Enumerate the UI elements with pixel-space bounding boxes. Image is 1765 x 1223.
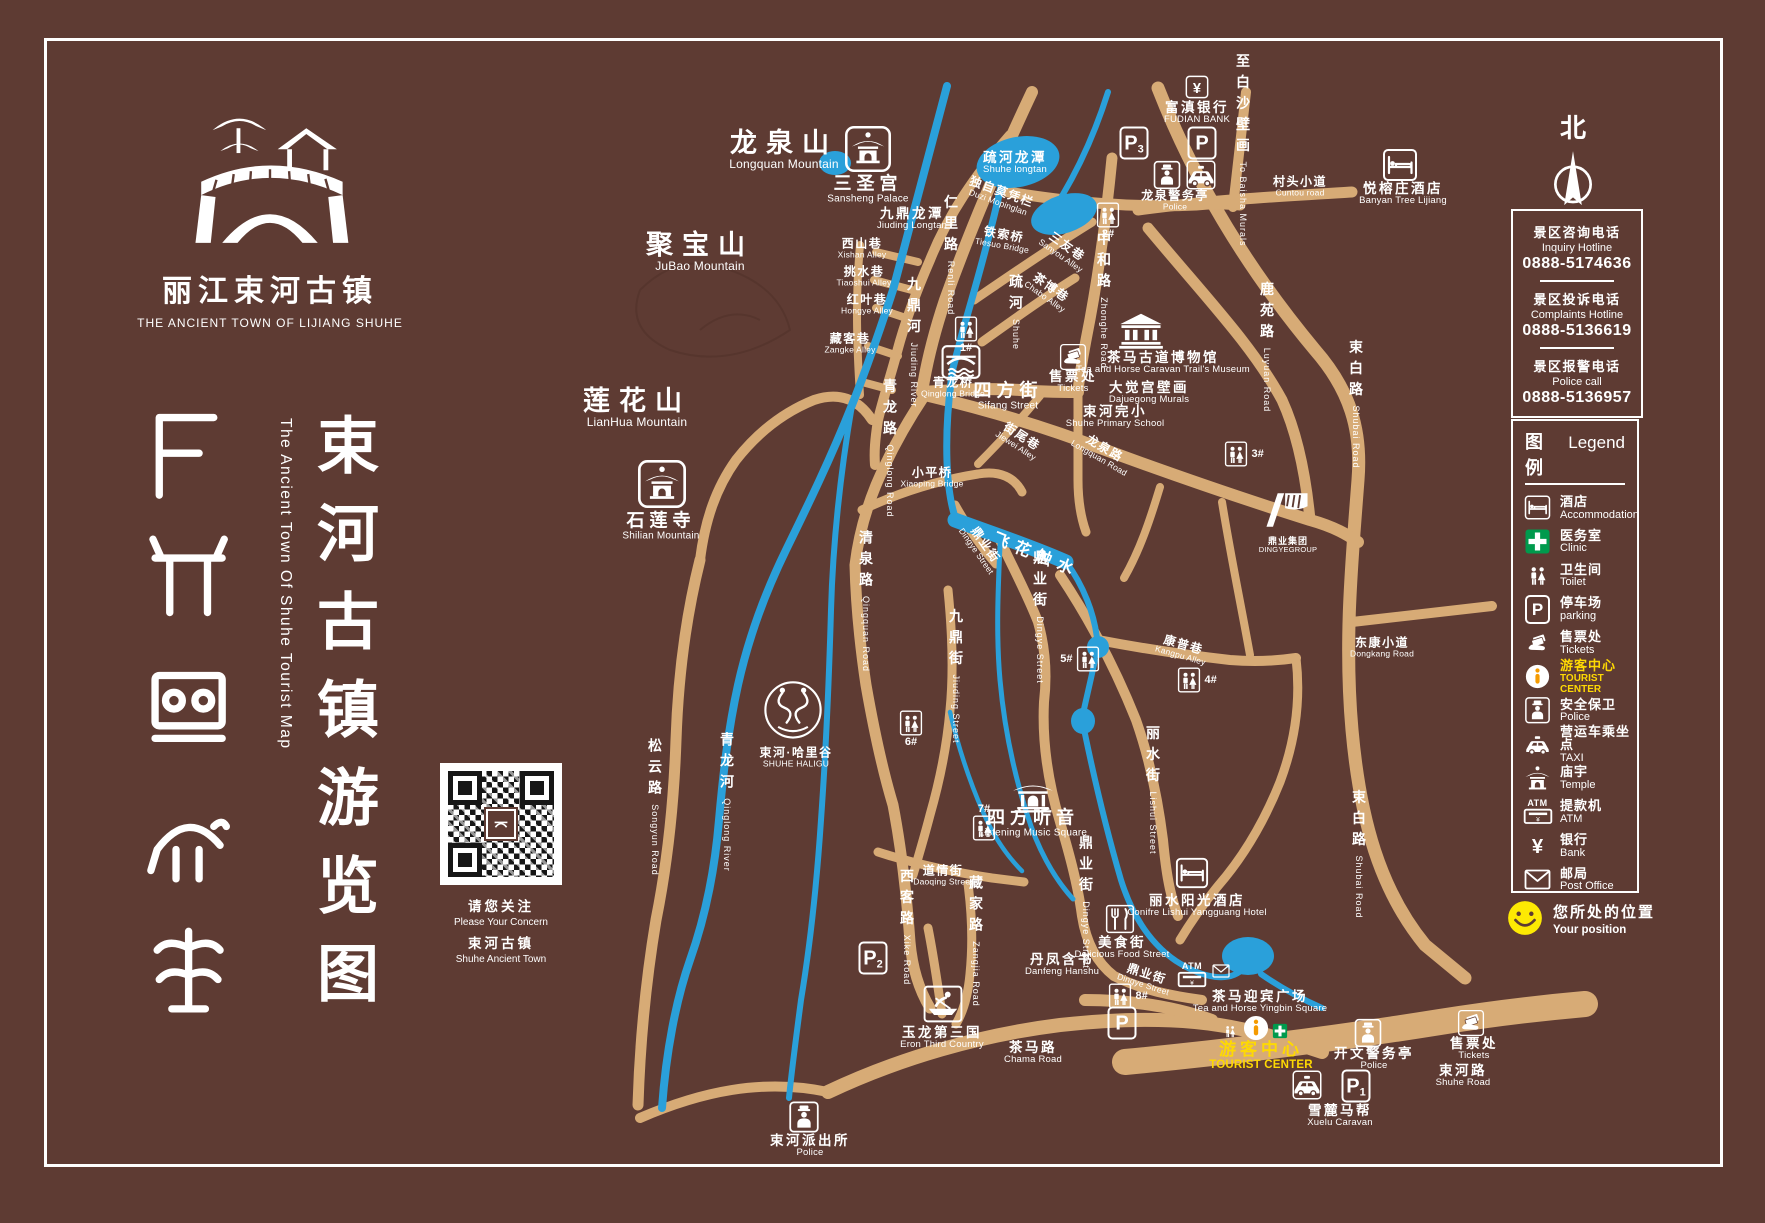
parking-p2-icon: P2 xyxy=(859,942,888,975)
logo-title-en: THE ANCIENT TOWN OF LIJIANG SHUHE xyxy=(120,316,420,330)
label-zhonghe-road: 中和路Zhonghe Road xyxy=(1095,231,1113,369)
legend-label-en: Bank xyxy=(1560,847,1588,859)
hotline-2: 景区投诉电话 Complaints Hotline 0888-5136619 xyxy=(1513,284,1641,345)
hotline-zh: 景区报警电话 xyxy=(1515,356,1639,375)
temple-icon xyxy=(1523,765,1552,792)
legend-label-zh: 邮局 xyxy=(1560,867,1614,881)
tickets-sifang-icon xyxy=(1060,344,1087,371)
cross-icon xyxy=(1523,528,1552,555)
label-tourist-center: 游客中心TOURIST CENTER xyxy=(1209,1040,1313,1072)
label-jiuding-longtan: 九鼎龙潭Jiuding Longtan xyxy=(877,206,947,232)
label-shuhe-haligu: 束河·哈里谷SHUHE HALIGU xyxy=(760,747,833,770)
taxi-icon xyxy=(1523,731,1552,758)
label-hongye-alley: 红叶巷Hongye Alley xyxy=(841,294,893,317)
atm-icon: ATM¥ xyxy=(1177,962,1207,988)
legend-item-police: 安全保卫 Police xyxy=(1513,694,1637,728)
label-lishui-street: 丽水街Lishui Street xyxy=(1144,725,1162,854)
legend-label-en: Tickets xyxy=(1560,644,1602,656)
label-dingye-street-south: 鼎业街Dingye Street xyxy=(1077,835,1095,969)
label-qingquan-road: 清泉路Qingquan Road xyxy=(857,530,875,672)
your-position-en: Your position xyxy=(1553,924,1655,936)
label-longquan-police: 龙泉警务亭Police xyxy=(1141,190,1209,213)
food-street-icon xyxy=(1105,904,1135,934)
label-xiaoping-bridge: 小平桥Xiaoping Bridge xyxy=(900,467,963,490)
legend-label-en: Post Office xyxy=(1560,880,1614,892)
svg-text:¥: ¥ xyxy=(1193,81,1202,97)
hotline-3: 景区报警电话 Police call 0888-5136957 xyxy=(1513,351,1641,412)
legend-title-zh: 图例 xyxy=(1525,428,1563,480)
legend-title-en: Legend xyxy=(1568,433,1625,453)
hotline-panel: 景区咨询电话 Inquiry Hotline 0888-5174636景区投诉电… xyxy=(1511,209,1643,418)
shuhe-police-station-icon xyxy=(788,1100,820,1134)
legend-item-tickets: 售票处 Tickets xyxy=(1513,626,1637,660)
your-position-block: 您所处的位置 Your position xyxy=(1506,899,1655,937)
north-label: 北 xyxy=(1546,108,1600,145)
sansheng-palace-icon xyxy=(845,126,891,172)
parking-p1-icon: P1 xyxy=(1342,1070,1371,1103)
hotline-zh: 景区投诉电话 xyxy=(1515,289,1639,308)
qr-caption-en-1: Please Your Concern xyxy=(440,917,562,928)
legend-label-en: ATM xyxy=(1560,813,1602,825)
legend-item-tourist-center: 游客中心 TOURIST CENTER xyxy=(1513,660,1637,694)
legend-item-atm: ATM¥ 提款机 ATM xyxy=(1513,795,1637,829)
label-shubai-road-south: 束白路Shubai Road xyxy=(1350,789,1368,918)
qr-caption-zh-1: 请您关注 xyxy=(440,895,562,915)
label-zangke-alley: 藏客巷Zangke Alley xyxy=(824,333,875,356)
p-icon: P xyxy=(1523,595,1552,624)
toilet-4-icon: 4# xyxy=(1177,667,1202,693)
hotline-1: 景区咨询电话 Inquiry Hotline 0888-5174636 xyxy=(1513,217,1641,278)
legend-item-parking: P 停车场 parking xyxy=(1513,592,1637,626)
label-fudian-bank: 富滇银行FUDIAN BANK xyxy=(1164,100,1230,126)
label-xuelu-caravan: 雪麓马帮Xuelu Caravan xyxy=(1307,1103,1372,1129)
legend-item-toilet: 卫生间 Toilet xyxy=(1513,559,1637,593)
legend-label-zh: 庙宇 xyxy=(1560,765,1595,779)
legend-item-post-office: 邮局 Post Office xyxy=(1513,863,1637,897)
fudian-bank-icon: ¥ xyxy=(1185,75,1209,99)
legend-item-taxi: 营运车乘坐点 TAXI xyxy=(1513,728,1637,762)
label-luyuan-road: 鹿苑路Luyuan Road xyxy=(1258,282,1276,413)
qr-code xyxy=(440,763,562,885)
label-shuhe-road: 束河路Shuhe Road xyxy=(1436,1063,1491,1089)
shuhe-haligu-logo xyxy=(759,678,827,746)
label-dingye-street-mid: 鼎业街Dingye Street xyxy=(1031,550,1049,684)
label-songyun-road: 松云路Songyun Road xyxy=(646,738,664,876)
label-shuhe-longtan: 疏河龙潭Shuhe longtan xyxy=(983,150,1047,176)
label-sansheng-palace: 三圣宫Sansheng Palace xyxy=(827,173,908,204)
hotline-number: 0888-5136619 xyxy=(1515,322,1639,340)
label-dajuegong-murals: 大觉宫壁画Dajuegong Murals xyxy=(1109,380,1189,406)
label-to-baisha-murals: 至白沙壁画To Baisha Murals xyxy=(1234,53,1252,246)
legend-item-accommodation: 酒店 Accommodation xyxy=(1513,491,1637,525)
contour-decoration xyxy=(636,263,790,356)
tickets-shuhe-road-icon xyxy=(1458,1010,1485,1037)
legend-label-en: parking xyxy=(1560,610,1602,622)
legend-label-zh: 售票处 xyxy=(1560,630,1602,644)
tourist-center-info-icon xyxy=(1242,1014,1270,1042)
north-arrow-icon xyxy=(1546,147,1600,209)
label-shilian-temple: 石莲寺Shilian Mountain xyxy=(622,510,699,541)
parking-p3-icon: P3 xyxy=(1120,127,1149,160)
shuhe-tourist-map: 龙泉山Longquan Mountain聚宝山JuBao Mountain莲花山… xyxy=(0,0,1765,1223)
qr-caption-en-2: Shuhe Ancient Town xyxy=(440,954,562,965)
label-cuntou-road: 村头小道Cuntou road xyxy=(1273,176,1327,199)
label-tiaoshui-alley: 挑水巷Tiaoshui Alley xyxy=(837,266,892,289)
post-office-icon xyxy=(1212,964,1230,978)
legend-label-en: Toilet xyxy=(1560,576,1602,588)
label-banyan-tree: 悦榕庄酒店Banyan Tree Lijiang xyxy=(1359,181,1447,207)
banyan-tree-hotel-icon xyxy=(1382,147,1418,183)
legend-label-zh: 安全保卫 xyxy=(1560,698,1616,712)
legend-label-en: Temple xyxy=(1560,779,1595,791)
legend-label-zh: 卫生间 xyxy=(1560,563,1602,577)
svg-text:¥: ¥ xyxy=(1536,817,1540,824)
yen-icon: ¥ xyxy=(1523,832,1552,859)
logo-title-zh: 丽江束河古镇 xyxy=(120,266,420,310)
label-zangjia-road: 藏家路Zangjia Road xyxy=(967,875,985,1007)
longquan-police-icon xyxy=(1153,160,1182,191)
toilet-5-icon: 5# xyxy=(1076,646,1101,672)
legend-label-zh: 医务室 xyxy=(1560,529,1602,543)
toilet-1-icon: 1# xyxy=(954,316,979,342)
map-title-zh: 束河古镇游览图 xyxy=(296,413,386,1029)
listening-music-square-icon xyxy=(1012,779,1054,813)
hotline-number: 0888-5136957 xyxy=(1515,389,1639,407)
label-qinglong-river: 青龙河Qinglong River xyxy=(718,732,736,872)
label-tickets-sifang: 售票处Tickets xyxy=(1049,369,1097,395)
envelope-icon xyxy=(1523,869,1552,890)
label-longquan-mountain: 龙泉山Longquan Mountain xyxy=(729,128,839,172)
label-shuhe-police-station: 束河派出所Police xyxy=(770,1133,850,1159)
qr-caption-zh-2: 束河古镇 xyxy=(440,932,562,952)
legend-item-temple: 庙宇 Temple xyxy=(1513,761,1637,795)
hotline-zh: 景区咨询电话 xyxy=(1515,222,1639,241)
hotline-number: 0888-5174636 xyxy=(1515,255,1639,273)
qr-block: 请您关注 Please Your Concern 束河古镇 Shuhe Anci… xyxy=(440,763,564,965)
toilet-6-icon: 6# xyxy=(899,710,924,736)
legend-label-zh: 银行 xyxy=(1560,833,1588,847)
legend-item-clinic: 医务室 Clinic xyxy=(1513,525,1637,559)
lishui-hotel-icon xyxy=(1175,856,1209,890)
label-shuhe-river: 疏河Shuhe xyxy=(1007,274,1025,350)
label-jiuding-river: 九鼎河Jiuding River xyxy=(905,276,923,407)
label-qinglong-road: 青龙路Qinglong Road xyxy=(881,378,899,517)
dingye-group-logo xyxy=(1259,486,1315,535)
bridge-logo-icon xyxy=(184,90,356,252)
toilet-2-icon: 2# xyxy=(1096,202,1121,228)
legend-panel: 图例 Legend 酒店 Accommodation 医务室 Clinic 卫生… xyxy=(1511,419,1639,893)
toilet-8-icon: 8# xyxy=(1108,983,1133,1009)
shilian-temple-icon xyxy=(638,460,686,508)
label-jiuding-street: 九鼎街Jiuding Street xyxy=(947,608,965,743)
label-tickets-shuhe-road: 售票处Tickets xyxy=(1450,1036,1498,1062)
toilet-7-icon: 7# xyxy=(972,815,997,841)
label-kaiwen-police: 开文警务亭Police xyxy=(1334,1046,1414,1072)
legend-label-zh: 游客中心 xyxy=(1560,659,1637,673)
legend-label-zh: 提款机 xyxy=(1560,799,1602,813)
label-tea-horse-square: 茶马迎宾广场Tea and Horse Yingbin Square xyxy=(1193,989,1327,1015)
label-chama-road: 茶马路Chama Road xyxy=(1004,1040,1062,1066)
longquan-taxi-icon xyxy=(1186,160,1216,190)
legend-label-en: Clinic xyxy=(1560,542,1602,554)
label-dingye-group: 鼎业集团DINGYEGROUP xyxy=(1259,536,1317,554)
legend-label-en: TAXI xyxy=(1560,752,1637,764)
xuelu-taxi-icon xyxy=(1292,1070,1322,1100)
svg-text:¥: ¥ xyxy=(1532,836,1544,858)
parking-south-icon: P xyxy=(1108,1007,1137,1040)
label-eron-third-country: 玉龙第三国Eron Third Country xyxy=(900,1025,984,1051)
legend-label-zh: 营运车乘坐点 xyxy=(1560,725,1637,752)
compass-block: 北 xyxy=(1546,108,1600,209)
label-renli-road: 仁里路Renli Road xyxy=(942,195,960,316)
svg-text:¥: ¥ xyxy=(1190,980,1194,987)
police-icon xyxy=(1523,696,1552,725)
kaiwen-police-icon xyxy=(1354,1018,1383,1049)
label-shuhe-primary-school: 束河完小Shuhe Primary School xyxy=(1066,404,1165,430)
tourist-center-clinic-icon xyxy=(1272,1023,1288,1039)
parking-north-icon: P xyxy=(1188,127,1217,160)
ticket-icon xyxy=(1523,630,1552,657)
bed-icon xyxy=(1523,494,1552,521)
toilet-3-icon: 3# xyxy=(1224,441,1249,467)
hotline-en: Police call xyxy=(1515,376,1639,388)
wc-icon xyxy=(1523,563,1552,587)
hotline-en: Inquiry Hotline xyxy=(1515,242,1639,254)
dongba-pictographs xyxy=(142,405,252,1055)
map-title-en: The Ancient Town Of Shuhe Tourist Map xyxy=(276,418,294,750)
label-sifang-street: 四方街Sifang Street xyxy=(974,380,1043,411)
label-xishan-alley: 西山巷Xishan Alley xyxy=(838,238,887,261)
legend-label-en: TOURIST CENTER xyxy=(1560,673,1637,695)
legend-label-en: Accommodation xyxy=(1560,509,1639,521)
label-shubai-road-north: 束白路Shubai Road xyxy=(1347,339,1365,468)
tea-horse-museum-icon xyxy=(1118,311,1164,350)
legend-label-zh: 停车场 xyxy=(1560,596,1602,610)
atm-icon: ATM¥ xyxy=(1523,799,1552,825)
tourist-center-toilet-icon xyxy=(1222,1023,1239,1038)
your-position-zh: 您所处的位置 xyxy=(1553,901,1655,922)
label-lishui-hotel: 丽水阳光酒店Conifre Lishui Yangguang Hotel xyxy=(1127,893,1266,919)
legend-item-bank: ¥ 银行 Bank xyxy=(1513,829,1637,863)
town-logo-block: 丽江束河古镇 THE ANCIENT TOWN OF LIJIANG SHUHE xyxy=(120,90,420,330)
label-daoqing-street: 道情街Daoqing Street xyxy=(913,865,973,888)
legend-title: 图例 Legend xyxy=(1525,428,1625,485)
label-lianhua-mountain: 莲花山LianHua Mountain xyxy=(583,386,691,430)
qr-center-logo xyxy=(486,809,516,839)
label-dongkang-road: 东康小道Dongkang Road xyxy=(1350,637,1414,660)
hotline-en: Complaints Hotline xyxy=(1515,309,1639,321)
legend-label-zh: 酒店 xyxy=(1560,495,1639,509)
eron-third-country-icon xyxy=(923,985,963,1023)
label-jubao-mountain: 聚宝山JuBao Mountain xyxy=(646,230,754,274)
info-icon xyxy=(1523,663,1552,690)
smiley-icon xyxy=(1506,899,1544,937)
legend-label-en: Police xyxy=(1560,711,1616,723)
